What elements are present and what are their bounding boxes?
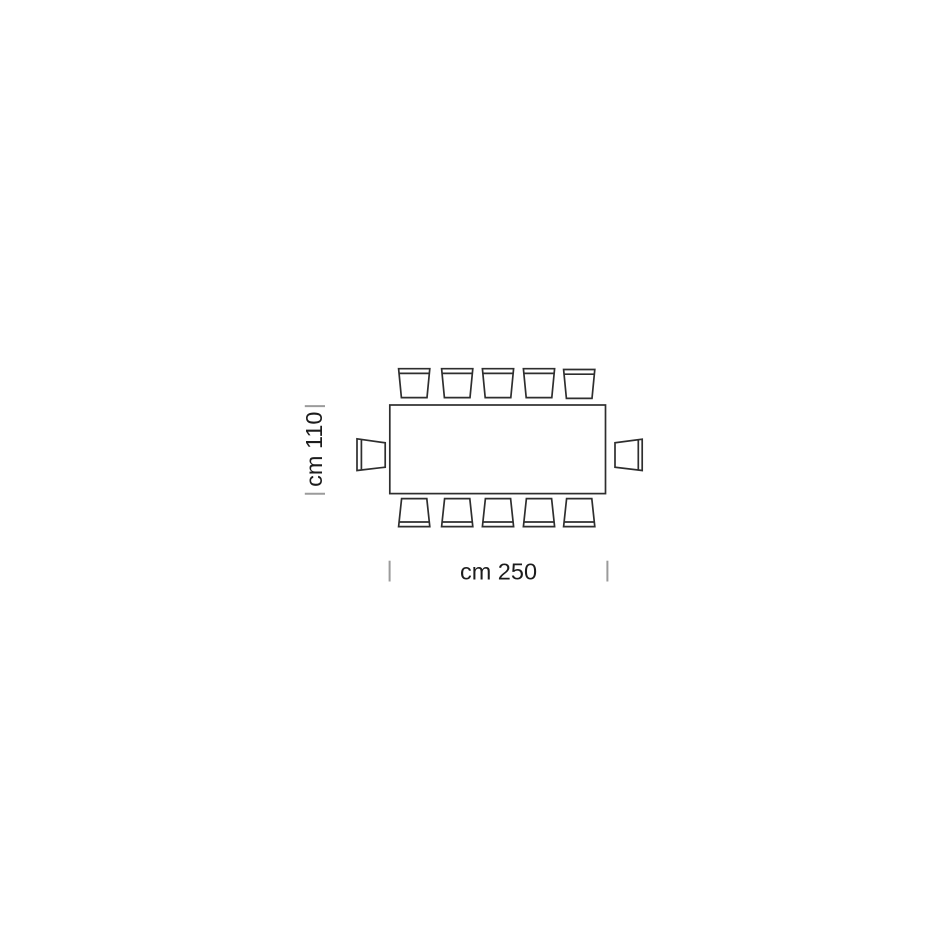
svg-text:cm 110: cm 110 xyxy=(301,412,327,487)
svg-text:cm 250: cm 250 xyxy=(460,559,537,585)
